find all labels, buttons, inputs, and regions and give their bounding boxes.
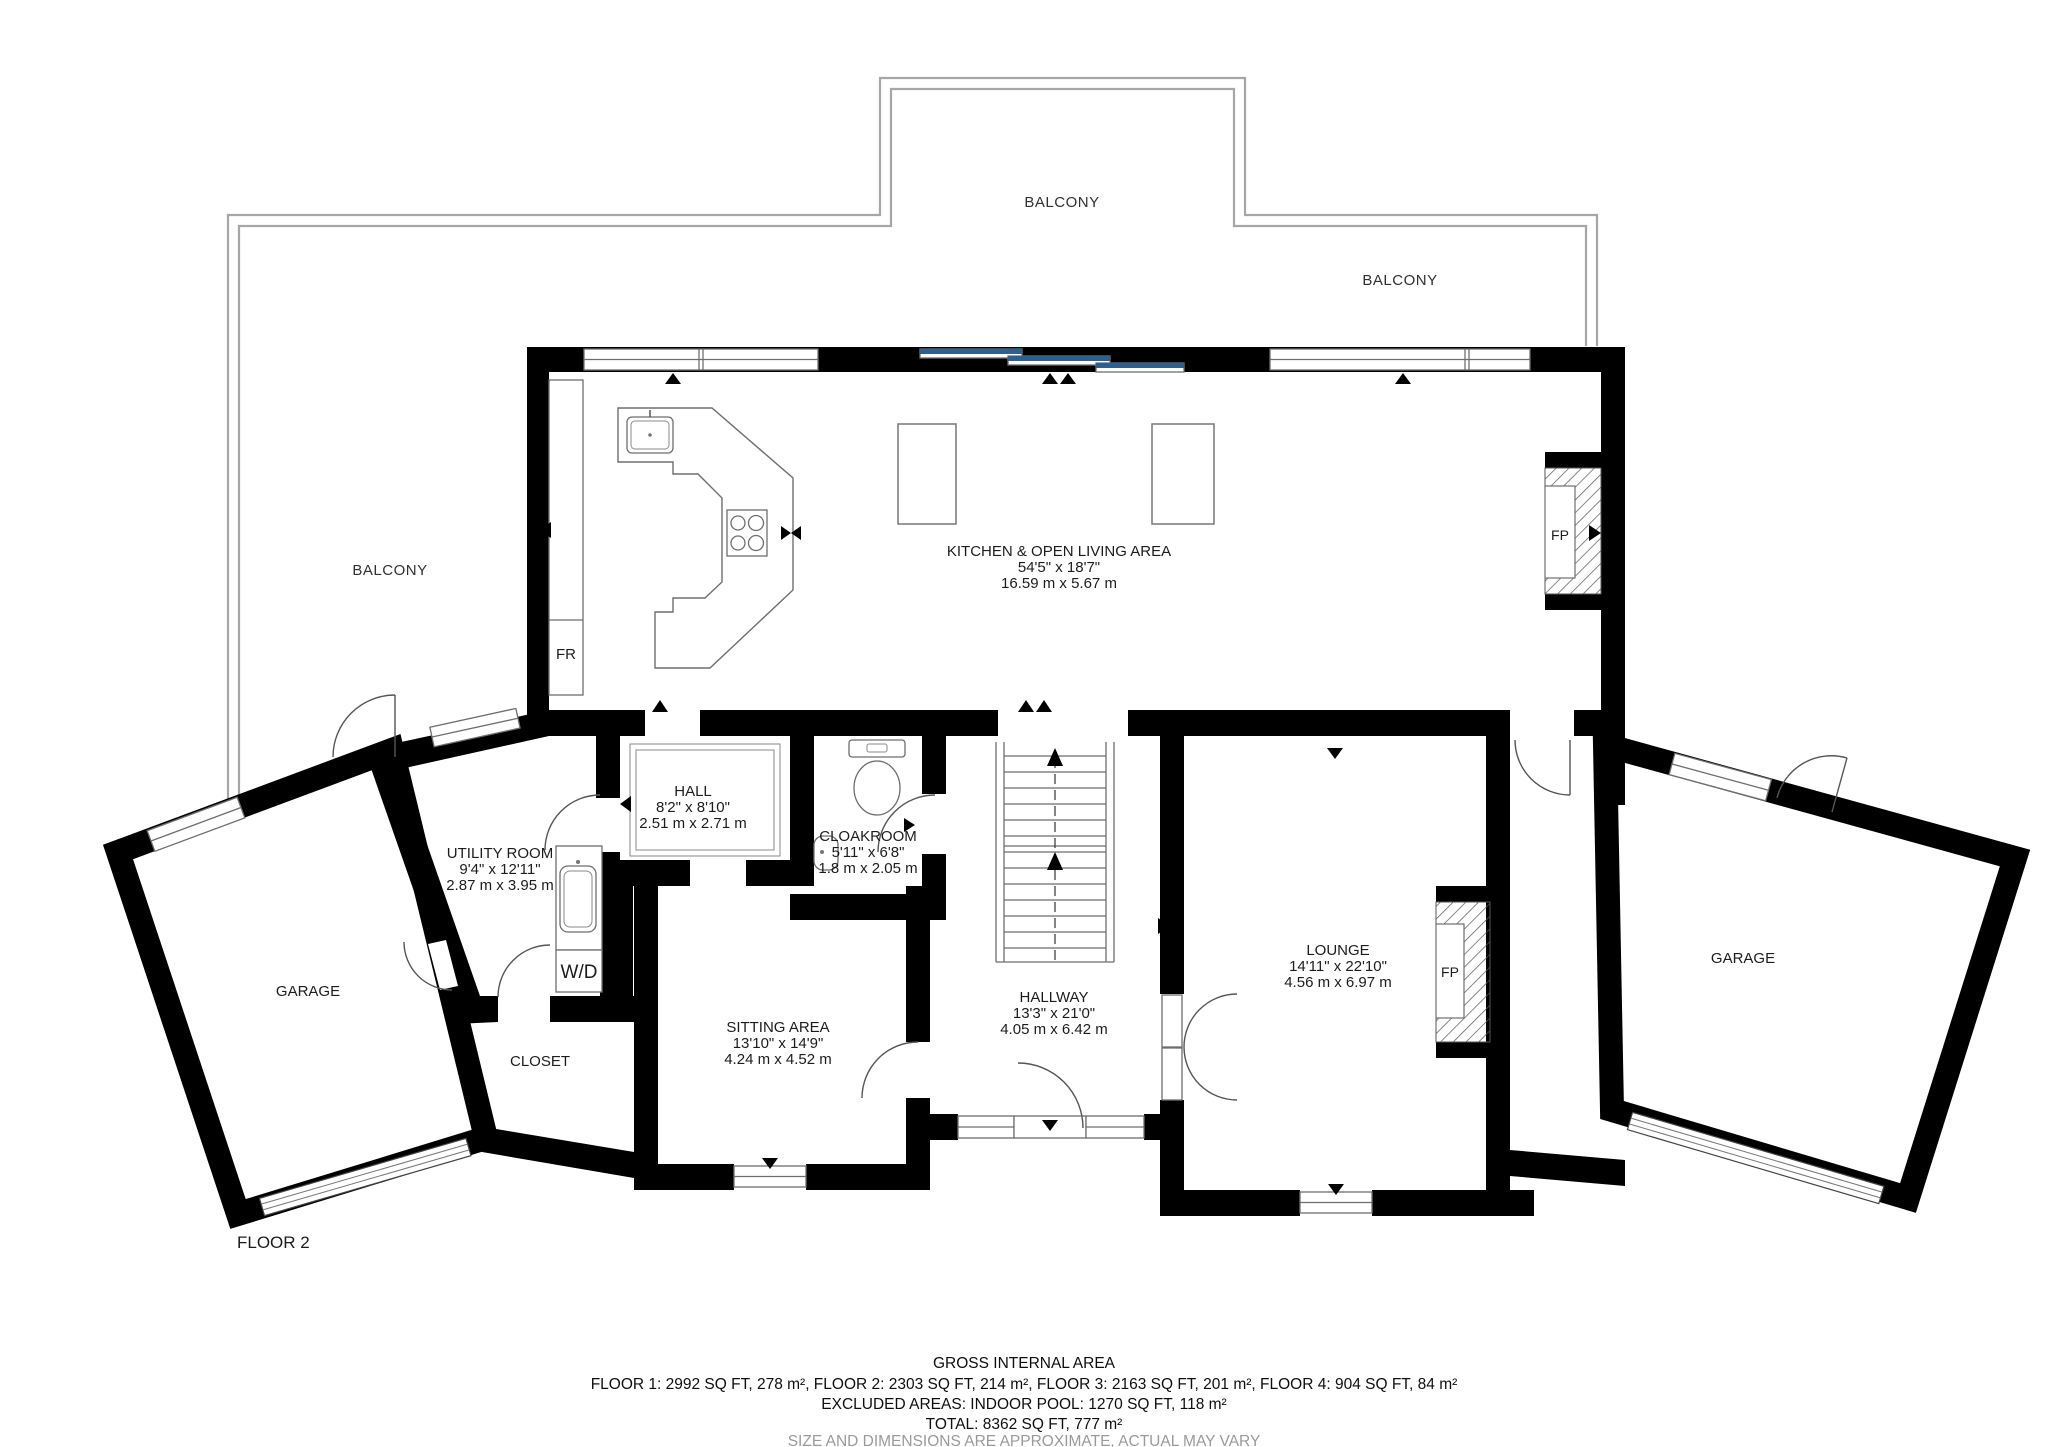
label-hallway-m: 4.05 m x 6.42 m xyxy=(1000,1021,1108,1038)
label-utility-ft: 9'4" x 12'11" xyxy=(459,861,540,878)
utility-closet-door-arc xyxy=(498,945,550,997)
label-utility-name: UTILITY ROOM xyxy=(447,845,553,862)
fridge-label: FR xyxy=(556,646,576,663)
footer-line2: FLOOR 1: 2992 SQ FT, 278 m², FLOOR 2: 23… xyxy=(591,1376,1458,1393)
label-hallway-ft: 13'3" x 21'0" xyxy=(1013,1005,1095,1022)
footer-disclaimer: SIZE AND DIMENSIONS ARE APPROXIMATE, ACT… xyxy=(788,1433,1261,1447)
lounge-double-door-arc-upper xyxy=(1184,994,1237,1047)
right-garage xyxy=(1605,745,2015,1204)
balcony-label-top: BALCONY xyxy=(1024,194,1099,211)
floor-plan-svg: FR FP xyxy=(0,0,2048,1447)
label-lounge-m: 4.56 m x 6.97 m xyxy=(1284,974,1392,991)
footer: GROSS INTERNAL AREA FLOOR 1: 2992 SQ FT,… xyxy=(591,1355,1458,1447)
label-hall-ft: 8'2" x 8'10" xyxy=(656,799,730,816)
label-sitting-ft: 13'10" x 14'9" xyxy=(733,1035,824,1052)
hob-icon xyxy=(727,510,767,556)
label-lounge-ft: 14'11" x 22'10" xyxy=(1289,958,1387,975)
washer-dryer-label: W/D xyxy=(561,962,598,983)
utility-sink-icon xyxy=(560,860,596,932)
fireplace-lounge: FP xyxy=(1436,886,1490,1058)
label-sitting-name: SITTING AREA xyxy=(726,1019,829,1036)
lounge-window xyxy=(1300,1192,1372,1213)
fridge-counter: FR xyxy=(549,380,583,695)
label-kitchen-m: 16.59 m x 5.67 m xyxy=(1001,575,1117,592)
floor-label: FLOOR 2 xyxy=(237,1233,310,1252)
label-cloakroom-m: 1.8 m x 2.05 m xyxy=(818,860,917,877)
label-hall-name: HALL xyxy=(674,783,712,800)
label-garage-left: GARAGE xyxy=(276,983,340,1000)
stairs-up-arrow xyxy=(1047,748,1063,766)
lounge-double-door-arc-lower xyxy=(1184,1047,1237,1100)
label-cloakroom-ft: 5'11" x 6'8" xyxy=(832,844,905,861)
hall-utility-door-arc xyxy=(545,795,600,850)
fireplace-kitchen-label: FP xyxy=(1551,527,1569,543)
label-lounge-name: LOUNGE xyxy=(1306,942,1369,959)
footer-line3: EXCLUDED AREAS: INDOOR POOL: 1270 SQ FT,… xyxy=(821,1396,1226,1413)
label-kitchen-name: KITCHEN & OPEN LIVING AREA xyxy=(947,543,1171,560)
label-garage-right: GARAGE xyxy=(1711,950,1775,967)
stairs-up-arrow xyxy=(1047,852,1063,870)
label-hallway-name: HALLWAY xyxy=(1020,989,1089,1006)
label-kitchen-ft: 54'5" x 18'7" xyxy=(1018,559,1100,576)
label-closet: CLOSET xyxy=(510,1053,570,1070)
fireplace-lounge-label: FP xyxy=(1441,964,1459,980)
kitchen-window-right xyxy=(1270,349,1530,370)
utility-counter xyxy=(556,846,602,950)
staircase xyxy=(996,742,1114,962)
footer-line4: TOTAL: 8362 SQ FT, 777 m² xyxy=(926,1416,1123,1433)
sitting-window xyxy=(734,1166,806,1187)
kitchen-columns xyxy=(898,424,1214,524)
lounge-double-door-leaves xyxy=(1162,995,1182,1100)
label-sitting-m: 4.24 m x 4.52 m xyxy=(724,1051,832,1068)
windows xyxy=(430,349,1530,1213)
footer-line1: GROSS INTERNAL AREA xyxy=(933,1355,1116,1372)
label-hall-m: 2.51 m x 2.71 m xyxy=(639,815,747,832)
kitchen-island xyxy=(618,408,793,668)
floorplan-page: FR FP xyxy=(0,0,2048,1447)
balcony-label-right: BALCONY xyxy=(1362,272,1437,289)
kitchen-window-left xyxy=(584,349,818,370)
sink-icon xyxy=(627,410,673,453)
label-utility-m: 2.87 m x 3.95 m xyxy=(446,877,554,894)
vestibule-door-arc xyxy=(1515,740,1570,795)
balcony-label-left: BALCONY xyxy=(352,562,427,579)
label-cloakroom-name: CLOAKROOM xyxy=(819,828,917,845)
toilet-icon xyxy=(849,740,905,815)
washer-dryer: W/D xyxy=(556,950,602,992)
